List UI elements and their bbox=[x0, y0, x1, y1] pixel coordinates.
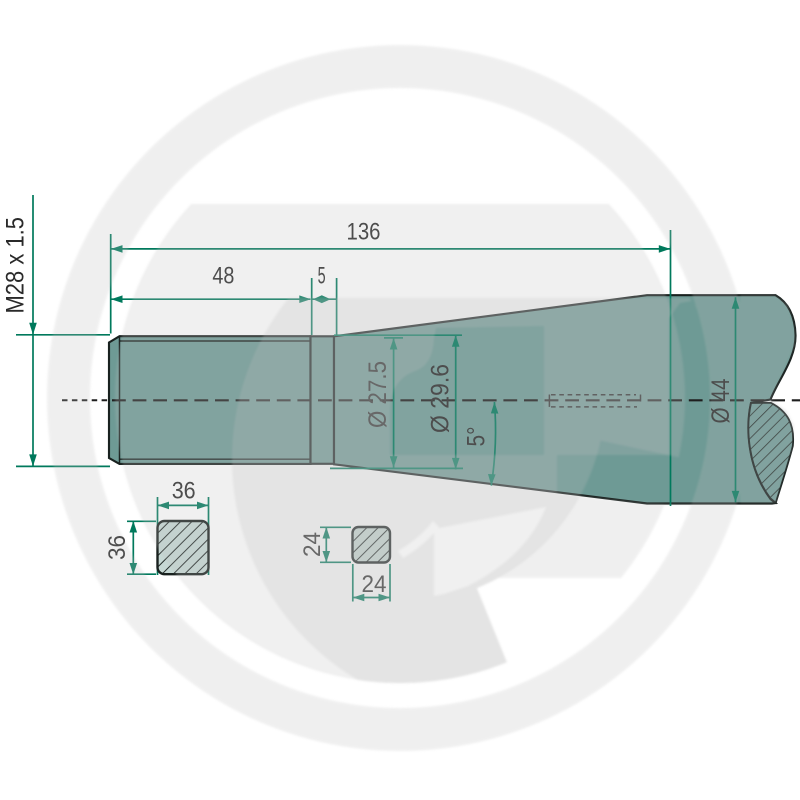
svg-text:M28 x 1.5: M28 x 1.5 bbox=[2, 217, 30, 314]
